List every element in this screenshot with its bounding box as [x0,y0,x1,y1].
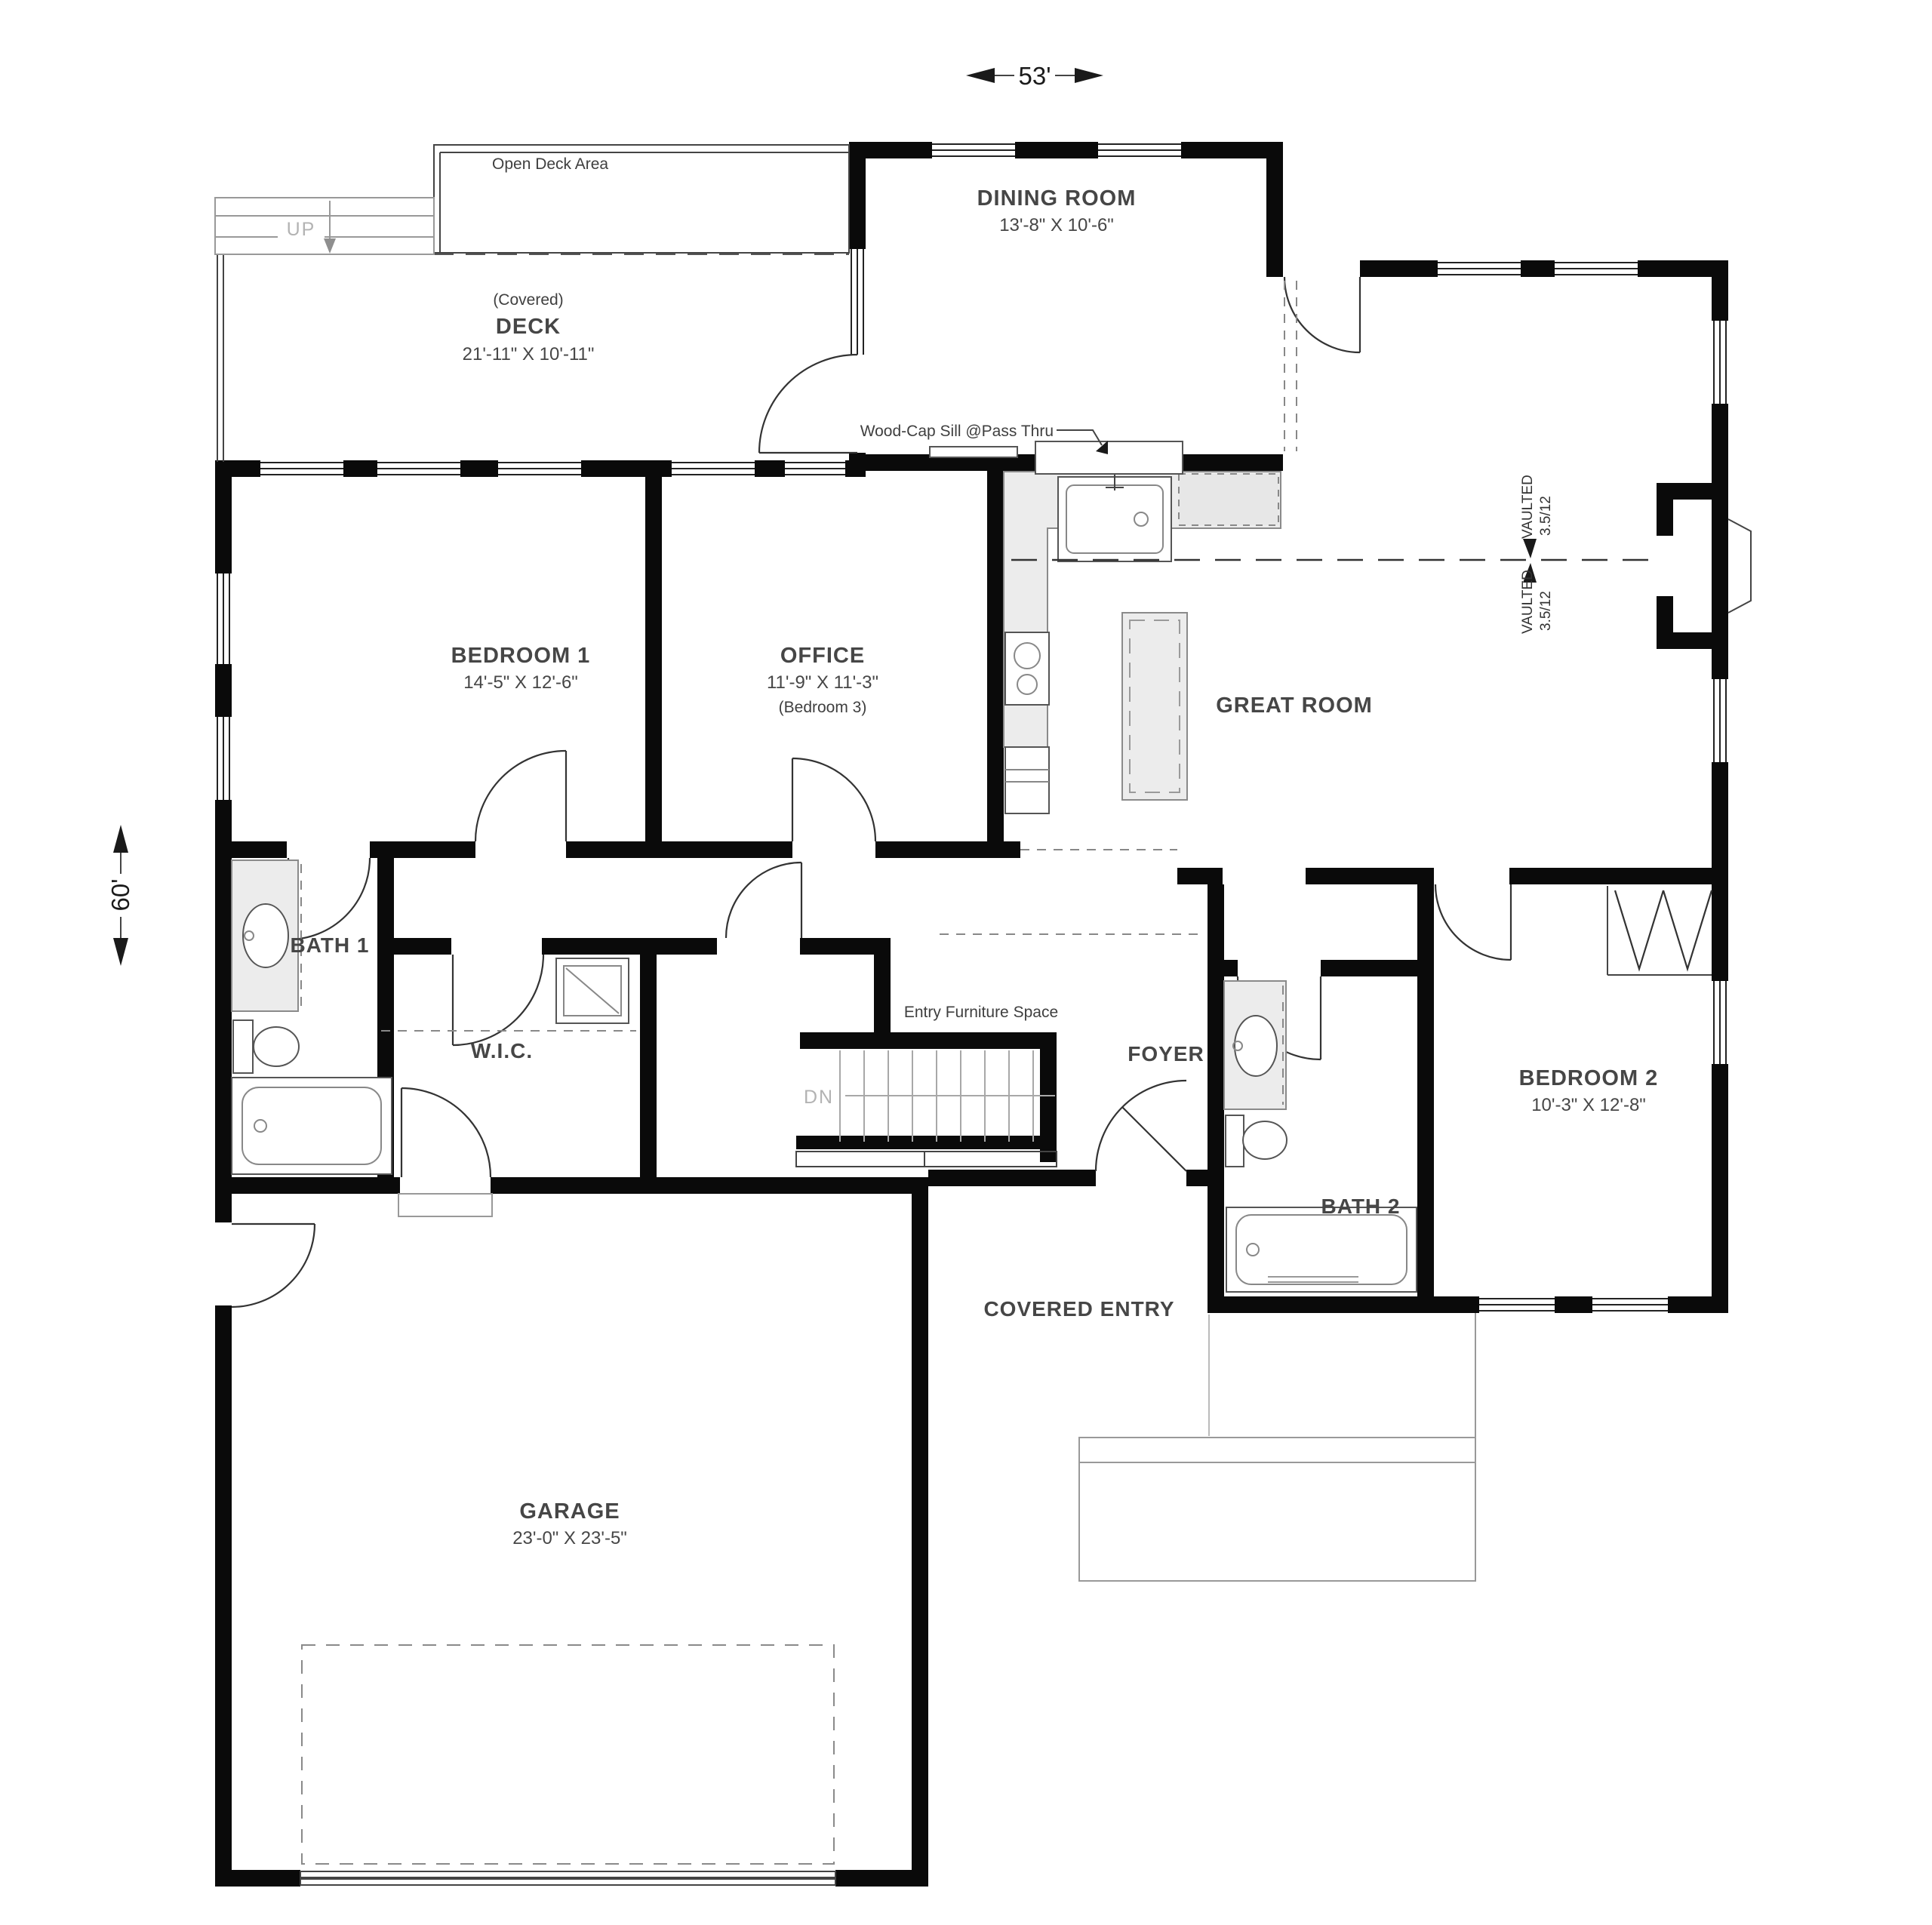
window [377,460,460,478]
window [848,249,866,355]
open-deck-label: Open Deck Area [492,155,608,173]
covered-entry-name: COVERED ENTRY [983,1297,1174,1321]
pass-thru-label: Wood-Cap Sill @Pass Thru [860,423,1054,440]
dimension-width: 53' [966,62,1103,90]
door-bedroom2 [1435,884,1511,960]
dimension-height: 60' [106,825,134,966]
wic-name: W.I.C. [471,1039,533,1062]
bath1-fixtures [232,860,392,1174]
bath2-name: BATH 2 [1321,1195,1400,1218]
bedroom1-name: BEDROOM 1 [451,644,591,668]
window [1479,1296,1555,1314]
range [1005,632,1049,705]
bath2-toilet [1226,1115,1287,1167]
foyer-name: FOYER [1128,1042,1204,1066]
door-hall-closet [726,863,801,938]
door-garage-side [214,1222,315,1307]
vaulted-lower-pitch: 3.5/12 [1538,591,1554,631]
window [785,460,845,478]
window [214,574,232,664]
vaulted-upper-label: VAULTED [1520,475,1536,539]
door-front-entry [1096,1081,1186,1171]
closet-bifold-doors-bedroom2 [1607,886,1712,975]
entry-furniture-label: Entry Furniture Space [904,1004,1058,1021]
window [498,460,581,478]
kitchen [930,441,1281,813]
window [1711,679,1729,762]
bath1-tub [232,1078,392,1174]
office-size: 11'-9" X 11'-3" [767,672,878,693]
door-office [792,758,875,841]
bedroom2-size: 10'-3" X 12'-8" [1531,1095,1646,1115]
great-room-name: GREAT ROOM [1216,693,1373,718]
deck-covered-label: (Covered) [493,291,563,309]
fireplace-bay [1728,519,1751,613]
window [260,460,343,478]
window [672,460,755,478]
vaulted-lower-label: VAULTED [1520,570,1536,634]
bedroom2-name: BEDROOM 2 [1519,1066,1659,1090]
vault-annotations: VAULTED 3.5/12 VAULTED 3.5/12 [1520,475,1554,634]
window [1098,141,1181,159]
deck-size: 21'-11" X 10'-11" [463,344,595,364]
bath1-toilet [233,1020,299,1073]
window [214,717,232,800]
door-great-room-deck [1283,260,1360,352]
vaulted-upper-pitch: 3.5/12 [1538,496,1554,536]
bath2-tub [1226,1207,1417,1292]
porch-outline [1079,1313,1475,1581]
bedroom1-size: 14'-5" X 12'-6" [463,672,578,693]
window [1711,981,1729,1064]
oven-cabinet [1005,747,1049,813]
door-dining-deck [759,355,867,453]
garage-name: GARAGE [519,1499,620,1524]
garage-size: 23'-0" X 23'-5" [512,1528,627,1548]
dining-size: 13'-8" X 10'-6" [999,215,1114,235]
window [1555,260,1638,278]
width-dimension-label: 53' [1018,62,1051,90]
kitchen-island [1122,613,1187,800]
refrigerator-space [1179,474,1278,525]
stairs-down-label: DN [804,1087,834,1108]
window [932,141,1015,159]
dining-name: DINING ROOM [977,186,1137,211]
height-dimension-label: 60' [106,878,134,911]
stairs-up-label: UP [287,219,316,240]
door-garage-entry [400,1088,491,1195]
office-alt: (Bedroom 3) [779,699,867,716]
bath2-vanity [1224,981,1286,1109]
deck-name: DECK [496,315,561,339]
deck-stairs: UP [215,198,434,254]
floor-plan: UP [0,0,1932,1925]
doors [214,260,1712,1307]
window [1438,260,1521,278]
window [1592,1296,1668,1314]
bath1-name: BATH 1 [290,933,369,957]
wic-fixtures [381,958,636,1031]
office-name: OFFICE [780,644,865,668]
wic-dresser [556,958,629,1023]
window [1711,321,1729,404]
door-bedroom1 [475,751,566,841]
